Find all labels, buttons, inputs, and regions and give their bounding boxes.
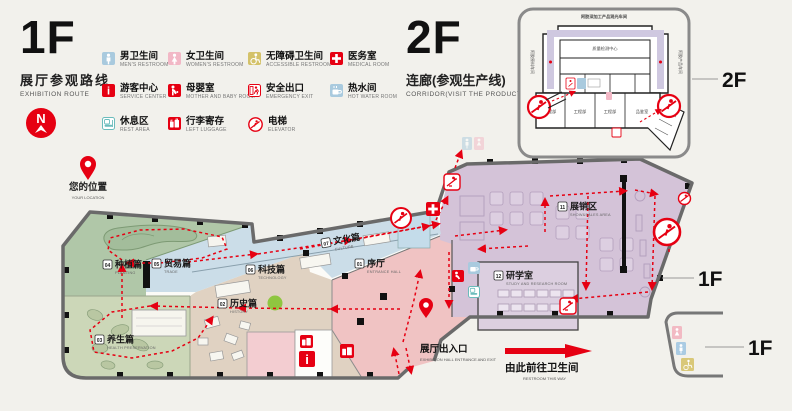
- restroom-block-1f: [666, 313, 723, 376]
- svg-text:养生篇: 养生篇: [106, 334, 134, 345]
- svg-text:工程部: 工程部: [574, 108, 587, 115]
- svg-text:11: 11: [560, 205, 566, 211]
- svg-text:STUDY AND RESEARCH ROOM: STUDY AND RESEARCH ROOM: [506, 282, 567, 286]
- svg-text:品鉴室: 品鉴室: [636, 108, 649, 115]
- escalator-circle-icon: [654, 219, 680, 245]
- svg-text:历史篇: 历史篇: [230, 298, 257, 309]
- floor-tag-2f: 2F: [722, 69, 747, 92]
- svg-text:RESTROOM THIS WAY: RESTROOM THIS WAY: [523, 376, 566, 381]
- svg-text:05: 05: [154, 262, 160, 268]
- svg-text:HEALTH PRESERVATION: HEALTH PRESERVATION: [107, 346, 156, 350]
- svg-text:阿胶产品车间: 阿胶产品车间: [678, 50, 684, 74]
- svg-text:展销区: 展销区: [570, 201, 597, 212]
- svg-text:阿胶原料车间: 阿胶原料车间: [530, 50, 536, 74]
- svg-text:ENTRANCE HALL: ENTRANCE HALL: [367, 270, 401, 274]
- svg-text:TECHNOLOGY: TECHNOLOGY: [258, 276, 287, 280]
- svg-text:工程部: 工程部: [604, 108, 617, 115]
- svg-text:由此前往卫生间: 由此前往卫生间: [505, 361, 579, 374]
- elevator-map-icon: [391, 208, 411, 228]
- floor-tag-1f-restroom: 1F: [748, 337, 773, 360]
- svg-text:SHOW&SALES AREA: SHOW&SALES AREA: [570, 213, 611, 217]
- entrance-label-en: EXHIBITION HALL ENTRANCE AND EXIT: [420, 357, 497, 362]
- svg-text:06: 06: [248, 268, 254, 274]
- svg-text:i: i: [305, 352, 309, 367]
- you-are-here-en: YOUR LOCATION: [72, 195, 105, 200]
- room-pink: [247, 332, 295, 377]
- inset-center-room: 质量检测中心: [592, 45, 618, 52]
- svg-text:12: 12: [496, 274, 502, 280]
- entrance-label-zh: 展厅出入口: [420, 343, 468, 355]
- svg-text:02: 02: [220, 302, 226, 308]
- restroom-this-way: 由此前往卫生间 RESTROOM THIS WAY: [505, 344, 592, 381]
- inset-2f: 阿胶深加工产品观光车间 质量检测中心 工程部 工程部 工程部 品鉴室 阿胶原料车…: [519, 9, 689, 157]
- svg-text:04: 04: [105, 263, 111, 269]
- svg-text:贸易篇: 贸易篇: [164, 258, 191, 269]
- inset-title: 阿胶深加工产品观光车间: [581, 13, 627, 20]
- svg-text:种植篇: 种植篇: [114, 259, 142, 270]
- svg-text:TRADE: TRADE: [164, 270, 178, 274]
- svg-text:03: 03: [97, 338, 103, 344]
- floor-guide-map: { "page": {"bg": "#f2f1ec", "accent_red"…: [0, 0, 792, 411]
- escalator-icon: [444, 174, 460, 190]
- floor-tag-1f-map: 1F: [698, 268, 723, 291]
- svg-text:HISTORY: HISTORY: [230, 310, 248, 314]
- svg-text:序厅: 序厅: [367, 258, 385, 269]
- you-are-here-zh: 您的位置: [69, 181, 108, 193]
- svg-text:研学室: 研学室: [506, 270, 533, 281]
- floor-plan-canvas: i 您的位置 YOUR LOCATION 01 序厅ENTRANCE HALL …: [0, 0, 792, 411]
- svg-text:01: 01: [357, 262, 363, 268]
- svg-text:PLANTING: PLANTING: [115, 271, 136, 275]
- svg-text:科技篇: 科技篇: [258, 264, 285, 275]
- you-are-here-pin: [80, 156, 96, 180]
